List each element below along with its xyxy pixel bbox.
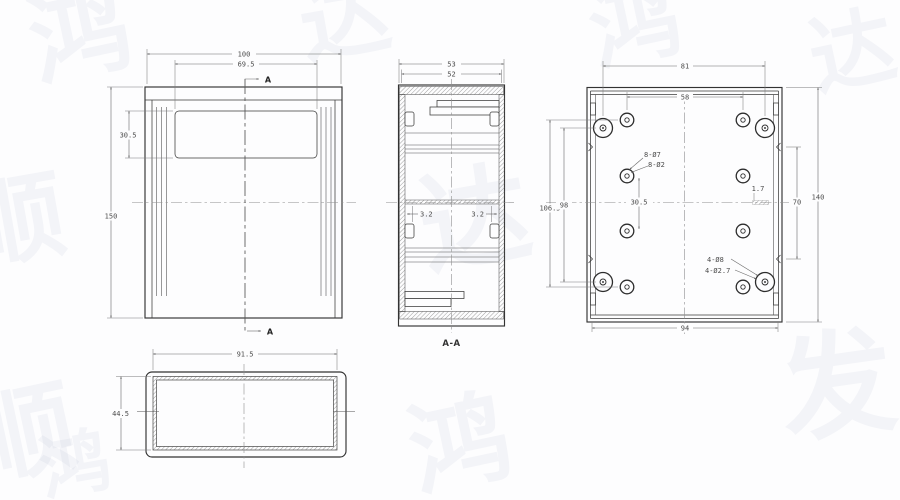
section-boss-left-bottom (405, 224, 414, 238)
section-view: 53 52 3.2 3.2 A-A (386, 59, 517, 349)
back-view: 81 58 8-Ø7 8-Ø2 30.5 (536, 61, 829, 334)
section-shelf-bottom-1 (405, 292, 464, 299)
dim-section-wall-left: 3.2 (407, 206, 433, 222)
callout-small-holes: 8-Ø7 8-Ø2 (630, 151, 665, 173)
section-boss-left-top (405, 112, 414, 126)
svg-text:8-Ø7: 8-Ø7 (644, 151, 661, 159)
svg-text:100: 100 (238, 51, 251, 59)
dim-front-window-height: 30.5 (115, 111, 173, 158)
bottom-inner-face (157, 380, 334, 447)
svg-text:3.2: 3.2 (420, 211, 433, 219)
dim-back-left-inner: 98 (556, 128, 596, 282)
front-view: A A 100 69.5 (100, 49, 356, 337)
svg-text:1.7: 1.7 (752, 185, 765, 193)
section-left-wall-hatch (400, 95, 406, 312)
front-window (175, 111, 317, 158)
section-letter-bottom: A (267, 328, 274, 337)
dim-back-notch: 1.7 (752, 185, 765, 200)
svg-text:44.5: 44.5 (112, 410, 129, 418)
front-rib-lines (157, 107, 332, 296)
section-view-label: A-A (442, 339, 460, 349)
svg-text:30.5: 30.5 (631, 199, 648, 207)
section-shelf-top-1 (437, 101, 499, 108)
section-letter-top: A (265, 76, 272, 85)
section-arrow-top: A (245, 76, 272, 88)
bottom-view: 91.5 44.5 (107, 349, 355, 468)
cad-drawing: A A 100 69.5 (0, 0, 900, 500)
svg-text:94: 94 (681, 325, 689, 333)
svg-text:52: 52 (447, 71, 455, 79)
section-right-wall-hatch (499, 95, 505, 312)
svg-text:69.5: 69.5 (238, 61, 255, 69)
dim-back-bottom-width: 94 (592, 322, 778, 333)
svg-text:81: 81 (681, 63, 689, 71)
back-parting-step (753, 201, 769, 205)
svg-text:70: 70 (793, 199, 801, 207)
back-corner-holes (594, 119, 775, 292)
section-parting-line-hatch (405, 200, 499, 204)
drawing-canvas: 鸿 达 鸿 顺 顺 达 达 发 鸿 鸿 (0, 0, 900, 500)
svg-text:91.5: 91.5 (237, 351, 254, 359)
svg-text:8-Ø2: 8-Ø2 (648, 161, 665, 169)
dim-bottom-width: 91.5 (153, 349, 337, 370)
section-interior-lines (405, 133, 499, 262)
callout-corner-holes: 4-Ø8 4-Ø2.7 (705, 256, 759, 279)
svg-text:98: 98 (560, 202, 568, 210)
dim-bottom-height: 44.5 (107, 377, 151, 451)
svg-text:58: 58 (681, 94, 689, 102)
svg-text:30.5: 30.5 (120, 132, 137, 140)
dim-back-corner-hole-span: 81 (603, 61, 765, 116)
svg-text:4-Ø8: 4-Ø8 (707, 256, 724, 264)
svg-text:3.2: 3.2 (471, 211, 484, 219)
dim-back-row-gap: 30.5 (626, 178, 653, 229)
svg-text:4-Ø2.7: 4-Ø2.7 (705, 267, 730, 275)
section-boss-right-bottom (490, 224, 499, 238)
dim-section-wall-right: 3.2 (471, 206, 497, 222)
dim-back-left-outer: 106.5 (536, 120, 618, 287)
svg-text:140: 140 (812, 194, 825, 202)
section-shelf-bottom-2 (405, 299, 451, 307)
section-arrow-bottom: A (247, 328, 274, 337)
svg-text:150: 150 (105, 213, 118, 221)
section-shelf-top-2 (430, 107, 499, 115)
svg-text:53: 53 (447, 61, 455, 69)
dim-back-notch-span: 70 (786, 147, 805, 259)
dim-front-window-width: 69.5 (175, 60, 317, 110)
section-boss-right-top (490, 112, 499, 126)
